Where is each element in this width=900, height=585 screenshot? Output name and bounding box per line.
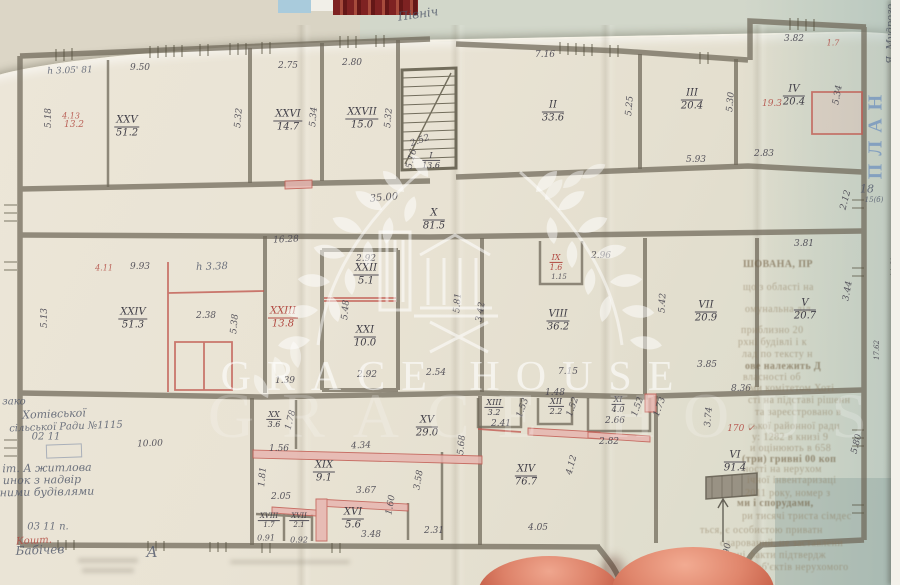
paper-crease	[450, 25, 466, 585]
illegible-text	[82, 568, 134, 573]
illegible-text	[78, 558, 138, 563]
underlying-tint-corner	[775, 478, 900, 585]
illegible-text	[230, 560, 350, 564]
floor-plan-photo: Північh 3.05' 81h 3.389.502.752.807.163.…	[0, 0, 900, 585]
background-red-ornate-object	[333, 0, 418, 15]
background-white-object	[311, 0, 333, 11]
blue-pencil-sketch	[46, 443, 82, 458]
photo-right-edge	[891, 0, 900, 585]
background-blue-object	[278, 0, 311, 13]
paper-crease	[600, 25, 616, 585]
paper-crease	[752, 25, 768, 585]
paper-crease	[296, 25, 312, 585]
